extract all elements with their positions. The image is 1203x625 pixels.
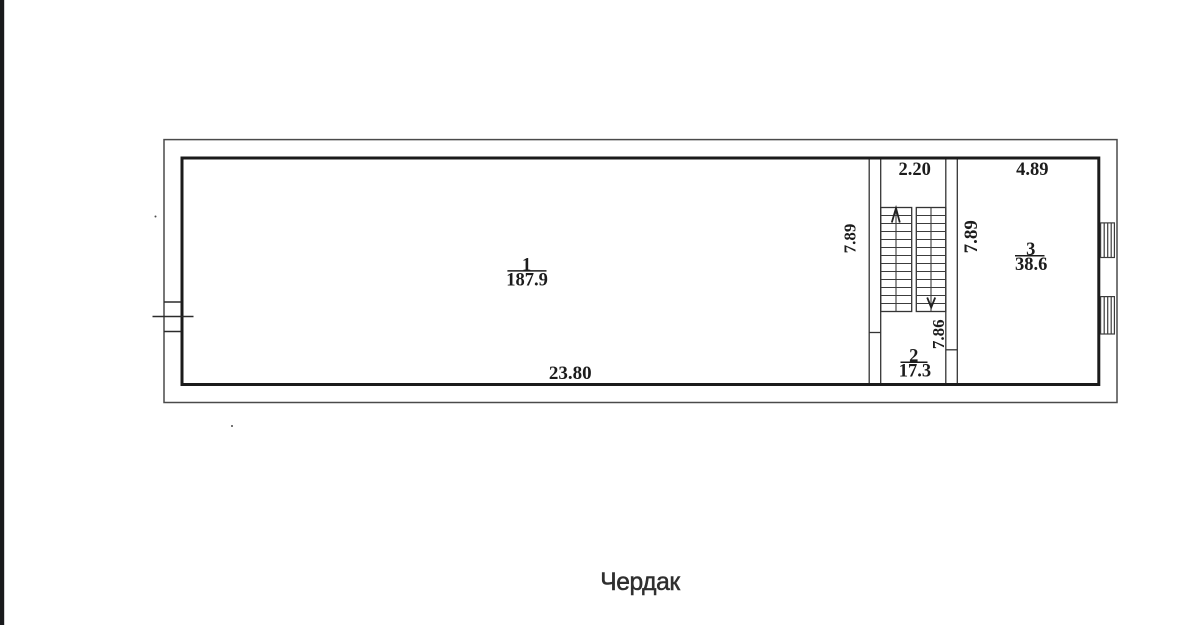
svg-text:23.80: 23.80: [549, 363, 592, 384]
svg-text:187.9: 187.9: [506, 270, 548, 290]
svg-text:17.3: 17.3: [899, 361, 931, 381]
svg-text:Чердак: Чердак: [600, 569, 680, 596]
svg-text:2.20: 2.20: [899, 160, 931, 180]
svg-text:38.6: 38.6: [1015, 255, 1047, 275]
svg-text:7.89: 7.89: [841, 224, 860, 254]
svg-text:7.86: 7.86: [929, 319, 948, 349]
svg-text:4.89: 4.89: [1016, 160, 1048, 180]
svg-text:7.89: 7.89: [961, 220, 982, 253]
